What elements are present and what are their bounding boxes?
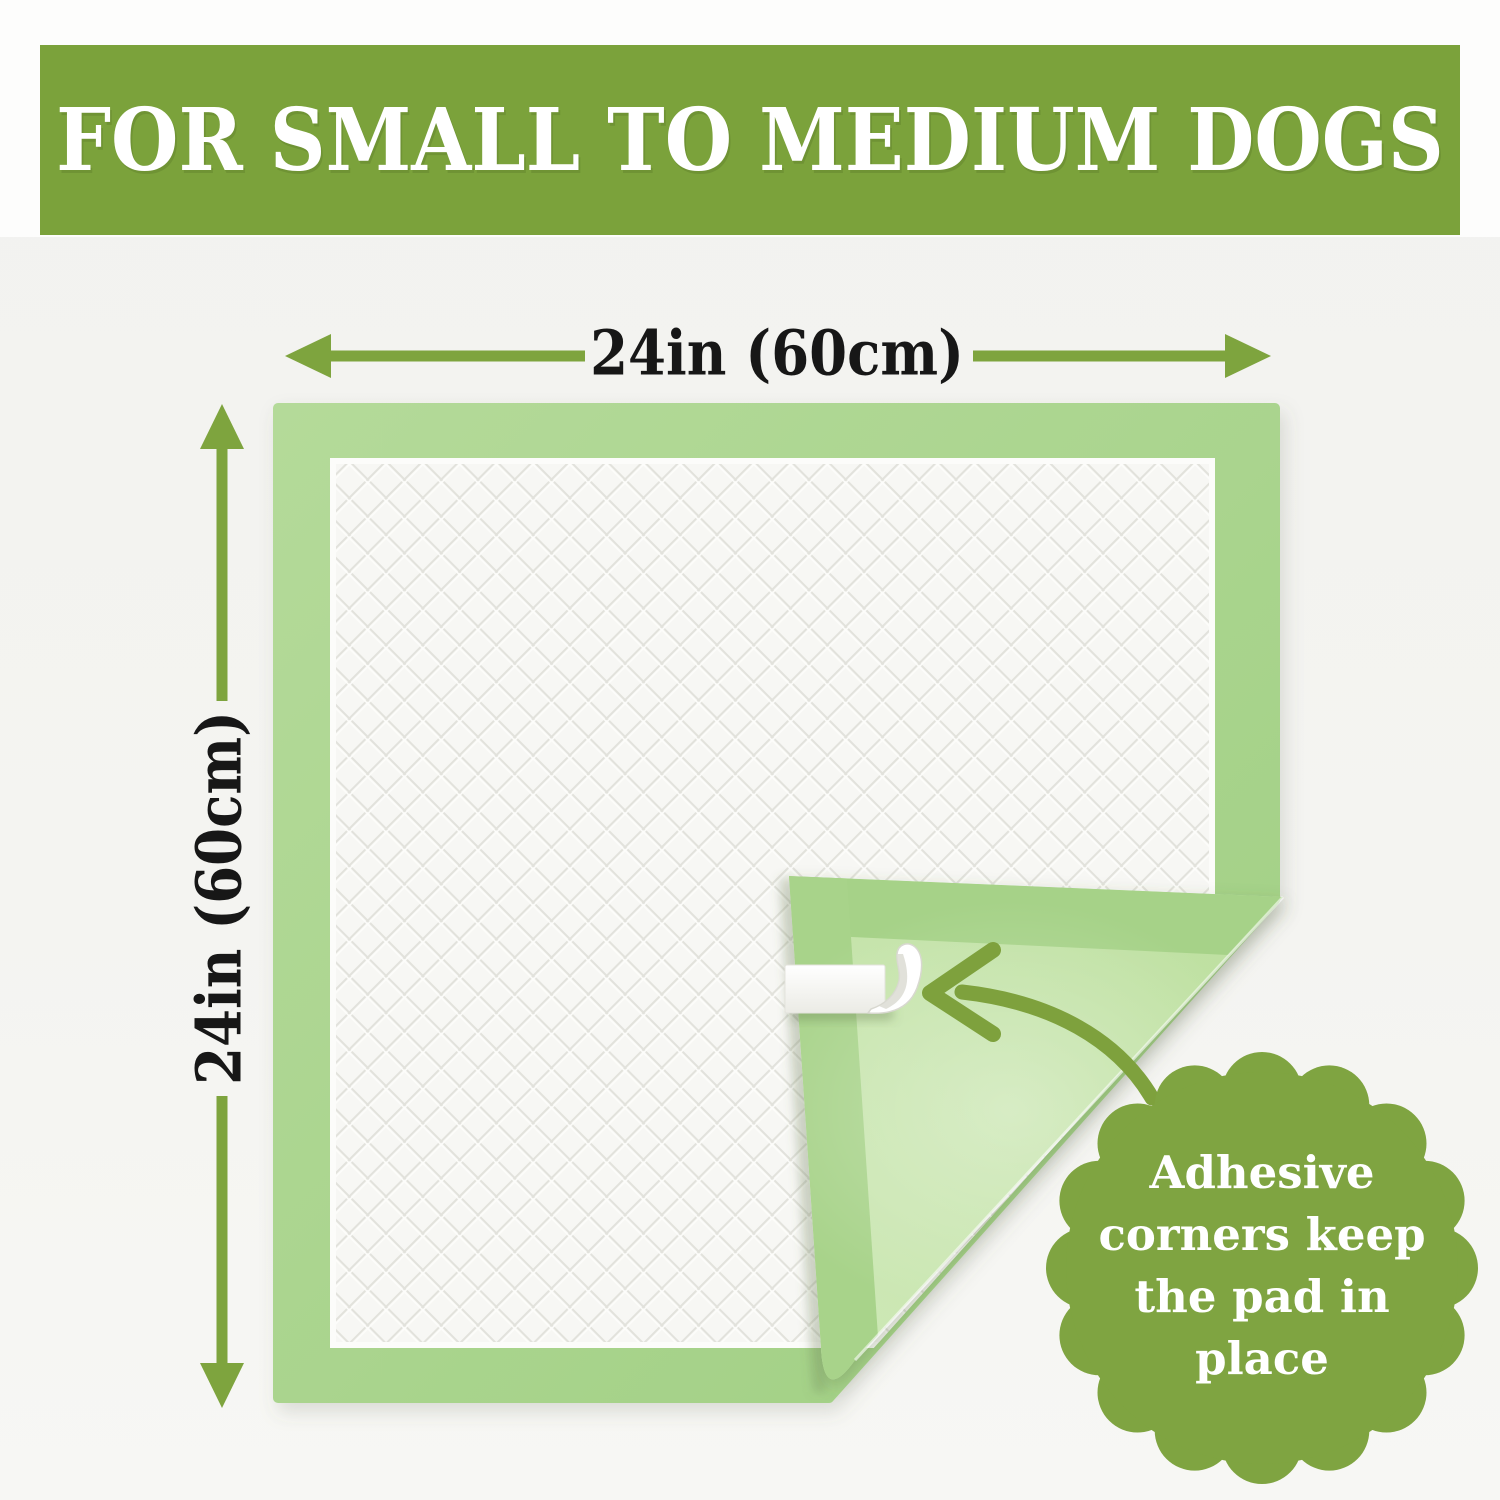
arrow-right-head (1225, 334, 1271, 378)
arrow-left-head (285, 334, 331, 378)
arrow-bottom-head (200, 1363, 244, 1408)
arrow-right-line (973, 351, 1231, 362)
product-infographic: FOR SMALL TO MEDIUM DOGS (0, 0, 1500, 1500)
tape-strip (785, 965, 885, 1013)
badge-line: corners keep (1098, 1204, 1425, 1266)
width-dimension-label: 24in (60cm) (590, 317, 964, 390)
badge-line: the pad in (1098, 1266, 1425, 1328)
arrow-left-line (327, 351, 585, 362)
badge-text: Adhesive corners keep the pad in place (1098, 1142, 1425, 1390)
height-dimension-label: 24in (60cm) (183, 711, 256, 1085)
arrow-bottom-line (217, 1096, 228, 1364)
arrow-top-line (217, 445, 228, 701)
badge-line: place (1098, 1328, 1425, 1390)
arrow-top-head (200, 404, 244, 449)
badge-line: Adhesive (1098, 1142, 1425, 1204)
